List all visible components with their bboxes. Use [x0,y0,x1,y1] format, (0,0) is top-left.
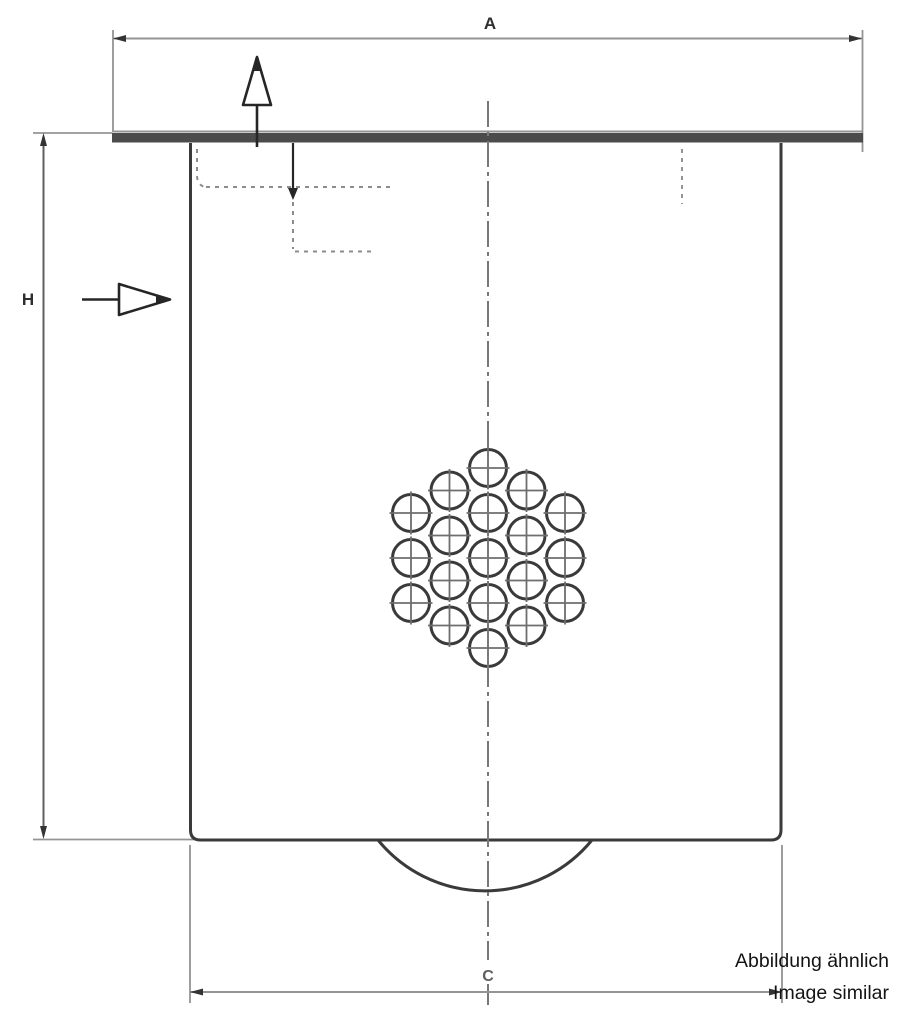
internal-flow-path [197,143,682,252]
dim-c-label: C [482,968,494,985]
inlet-flow-symbol [82,284,170,315]
dim-h-arrow-up-icon [40,133,47,146]
dim-c-arrow-left-icon [190,989,203,996]
flow-drop-arrow-icon [288,188,298,200]
flow-dash-corner [197,149,206,187]
filter-body-outline [191,143,782,840]
dim-h-label: H [22,290,34,309]
similarity-note: Abbildung ähnlich Image similar [735,950,889,1004]
dim-a-arrow-left-icon [113,35,126,42]
technical-drawing-canvas: A H [0,0,910,1024]
note-line-german: Abbildung ähnlich [735,950,889,972]
dimension-c: C [190,845,782,1003]
right-arrow-tip [156,295,170,305]
dim-a-label: A [484,14,496,33]
bottom-arc [378,840,592,891]
dim-a-arrow-right-icon [849,35,862,42]
filter-drawing-svg: A H [0,0,910,1024]
note-line-english: Image similar [773,982,889,1004]
dim-h-arrow-down-icon [40,826,47,839]
up-arrow-tip [252,57,262,71]
